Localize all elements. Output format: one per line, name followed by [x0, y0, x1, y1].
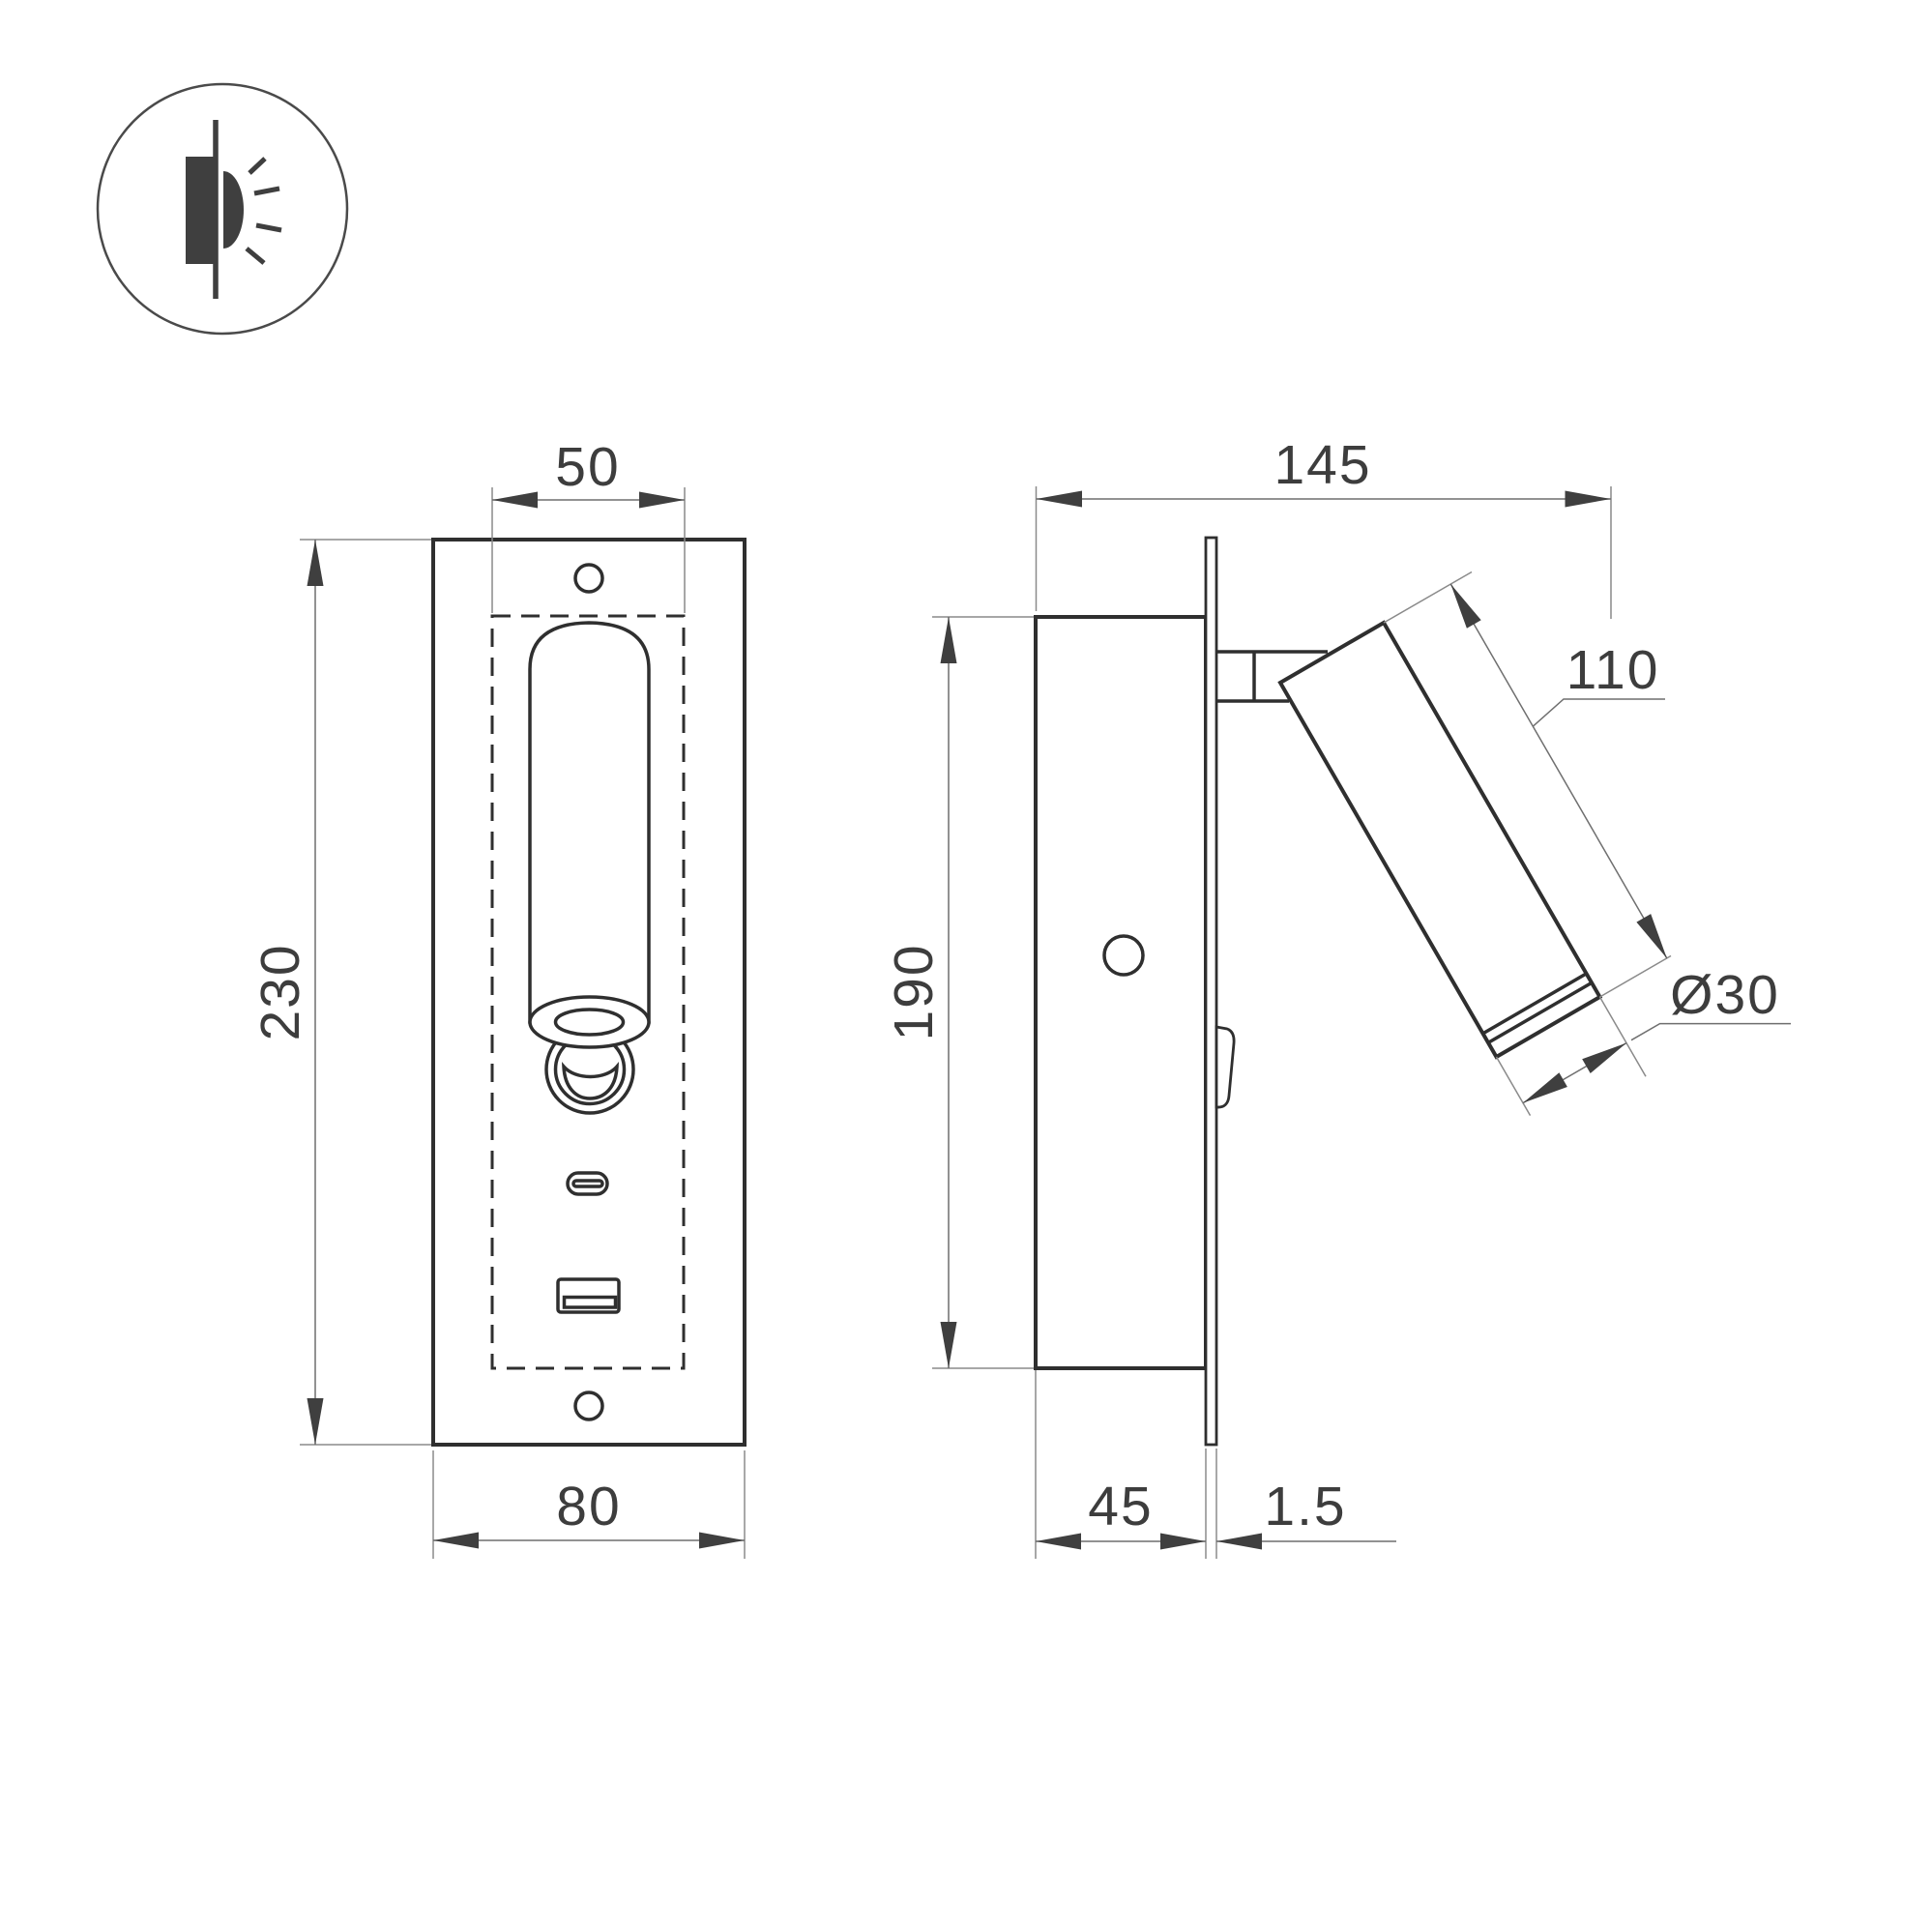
lamp-head-rim: [530, 997, 649, 1047]
dimension-label-80: 80: [556, 1476, 621, 1537]
dimension-label-1-5: 1.5: [1264, 1476, 1346, 1537]
dimension-recess-depth: 45: [1036, 1370, 1206, 1559]
dimension-label-d30: Ø30: [1670, 964, 1780, 1026]
technical-drawing-page: 50 230 80: [0, 0, 1932, 1932]
dimension-label-45: 45: [1088, 1476, 1153, 1537]
recessed-housing: [1036, 617, 1206, 1368]
dimension-faceplate-thickness: 1.5: [1216, 1449, 1396, 1559]
usb-c-port: [568, 1173, 607, 1194]
toggle-switch: [1216, 1027, 1234, 1107]
icon-recessed-body: [186, 157, 214, 264]
dimension-front-panel-width: 80: [433, 1450, 745, 1559]
icon-circle-border: [98, 84, 347, 334]
dimension-label-50: 50: [555, 436, 620, 498]
dimension-side-total-depth: 145: [1037, 434, 1612, 619]
icon-light-dome: [223, 171, 244, 249]
dimension-label-110: 110: [1566, 639, 1660, 701]
dimension-label-190: 190: [883, 943, 945, 1040]
faceplate-side-profile: [1206, 538, 1216, 1445]
dimension-label-145: 145: [1273, 434, 1371, 496]
recessed-wall-light-icon: [98, 84, 347, 334]
dimension-side-recess-height: 190: [883, 617, 1034, 1368]
front-view: 50 230 80: [249, 436, 745, 1559]
usb-a-port: [558, 1279, 619, 1312]
adjustable-lamp-head: [1280, 623, 1600, 1057]
side-view: 145 190 110 Ø30: [883, 434, 1791, 1559]
drawing-canvas: 50 230 80: [0, 0, 1932, 1932]
reading-lamp-cylinder: [530, 623, 649, 1047]
dimension-label-230: 230: [249, 943, 311, 1040]
icon-light-rays: [247, 159, 281, 263]
dimension-front-panel-height: 230: [249, 540, 431, 1445]
